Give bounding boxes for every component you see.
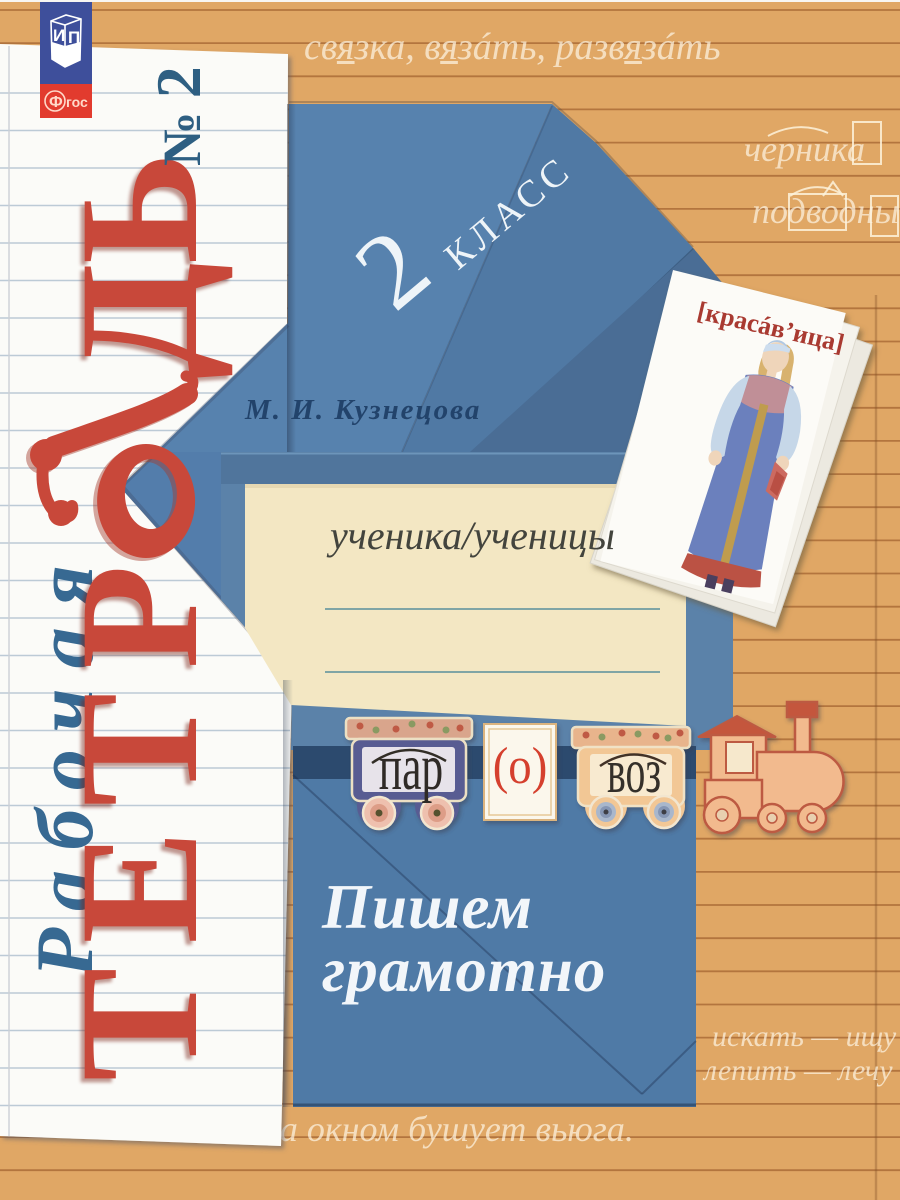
svg-text:П: П <box>68 28 80 47</box>
svg-text:Ф: Ф <box>49 94 63 111</box>
svg-text:И: И <box>53 26 65 45</box>
svg-text:гос: гос <box>66 94 88 110</box>
